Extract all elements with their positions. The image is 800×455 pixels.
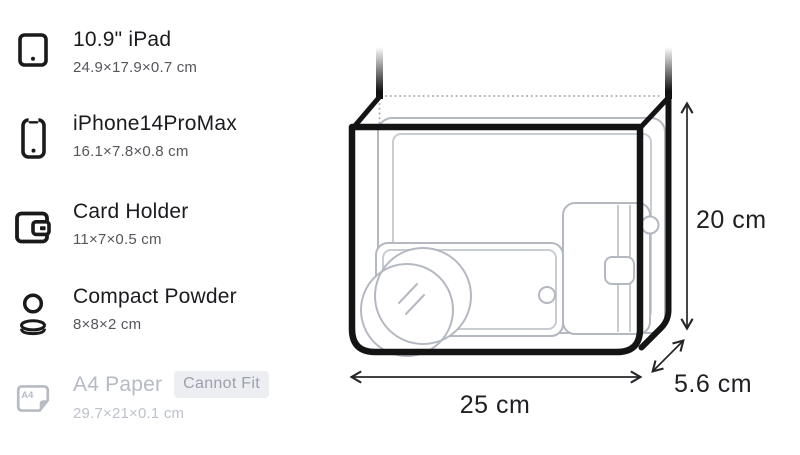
- bag-strap-right: [665, 47, 672, 99]
- iphone-outline: [563, 203, 659, 334]
- width-dimension-label: 25 cm: [460, 391, 531, 419]
- width-dimension: 25 cm: [352, 377, 640, 419]
- depth-dimension: 5.6 cm: [653, 341, 752, 398]
- depth-dimension-label: 5.6 cm: [674, 370, 752, 398]
- height-dimension-label: 20 cm: [696, 206, 767, 234]
- items-inside-bag: [361, 118, 665, 356]
- height-dimension: 20 cm: [687, 104, 767, 328]
- bag-top-left-edge: [353, 98, 379, 129]
- bag-strap-left: [376, 47, 383, 99]
- bag-illustration: 20 cm 25 cm 5.6 cm: [0, 0, 800, 455]
